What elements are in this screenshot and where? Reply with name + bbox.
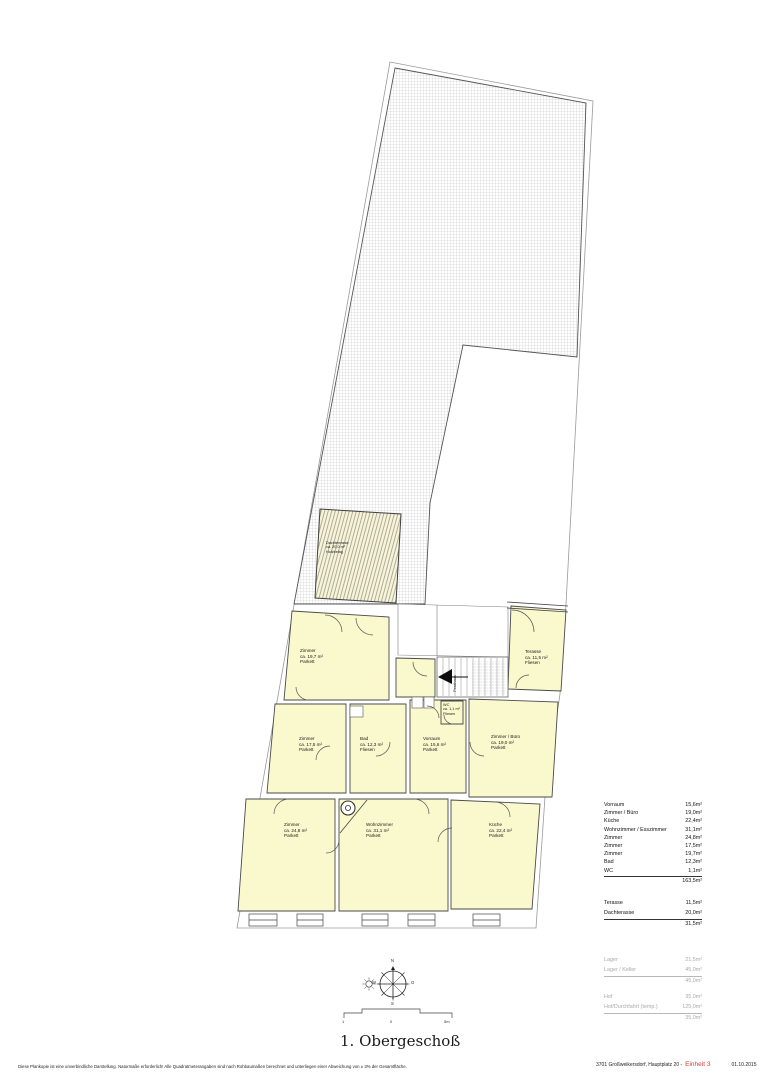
table-total-row: 163,5m² [604,876,702,886]
address-text: 3701 Großweikersdorf, Hauptplatz 20 - [596,1062,682,1068]
compass-north-label: N [391,958,394,963]
compass-rose-icon [363,966,410,1001]
table-row: Hof/Durchfahrt (temp.)125,0m² [604,1004,702,1014]
table-total-row: 45,0m² [604,976,702,988]
table-row: Bad12,3m² [604,859,702,867]
stair-direction-label: Penthaus [452,675,457,692]
table-row: Lager / Keller45,0m² [604,967,702,977]
footer-address-line: 3701 Großweikersdorf, Hauptplatz 20 - Ei… [596,1061,756,1068]
room-label-vorraum: Vorraum ca. 15,6 m² Parkett [423,736,446,753]
staircase [437,657,508,697]
table-total-row: 31,5m² [604,919,702,931]
area-table-courtyard: Hof35,0m² Hof/Durchfahrt (temp.)125,0m² … [604,994,702,1025]
scale-bar [344,1009,452,1018]
corridor-area [396,658,435,697]
scale-label-right: 5m [444,1019,450,1024]
compass-south-label: S [391,1001,394,1006]
room-label-wc: WC ca. 1,1 m² Fliesen [443,703,460,716]
disclaimer-text: Diese Plankopie ist eine unverbindliche … [18,1064,463,1069]
floorplan-page: Zimmer ca. 19,7 m² Parkett Terasse ca. 1… [0,0,763,1080]
room-kueche-area [451,800,540,909]
table-row: Zimmer / Büro19,0m² [604,810,702,818]
room-label-dachterrasse: Dachterrasse ca. 20,0 m² Holzbelag [326,541,349,554]
unit-badge: Einheit 3 [685,1061,710,1068]
table-row: Dachterasse20,0m² [604,910,702,920]
scale-label-mid: 0 [390,1019,392,1024]
page-title: 1. Obergeschoß [340,1032,460,1050]
plan-date: 01.10.2015 [731,1062,756,1068]
room-label-bad: Bad ca. 12,3 m² Fliesen [360,736,383,753]
room-label-zimmer-175: Zimmer ca. 17,5 m² Parkett [299,736,322,753]
table-row: Terasse11,5m² [604,900,702,910]
table-row: Lager21,5m² [604,957,702,967]
compass-east-label: O [411,980,414,985]
room-label-zimmer-248: Zimmer ca. 24,8 m² Parkett [284,822,307,839]
stairwell-void [398,604,508,657]
room-label-terasse: Terasse ca. 11,5 m² Fliesen [525,649,548,666]
scale-label-left: 1 [342,1019,344,1024]
room-label-zimmer-buero: Zimmer / Büro ca. 19,0 m² Parkett [491,734,520,751]
table-row: Zimmer24,8m² [604,835,702,843]
facade-windows [249,914,500,926]
room-zimmer-248-area [238,799,335,911]
table-row: Hof35,0m² [604,994,702,1004]
room-label-wohnzimmer: Wohnzimmer ca. 31,1 m² Parkett [366,822,393,839]
room-label-kueche: Küche ca. 22,4 m² Parkett [489,822,512,839]
table-row: Wohnzimmer / Esszimmer31,1m² [604,827,702,835]
table-row: Vorraum15,6m² [604,802,702,810]
area-table-storage: Lager21,5m² Lager / Keller45,0m² 45,0m² [604,957,702,988]
area-table-terraces: Terasse11,5m² Dachterasse20,0m² 31,5m² [604,900,702,931]
table-row: Zimmer17,5m² [604,843,702,851]
room-wohnzimmer-area [339,799,448,911]
table-row: Küche22,4m² [604,818,702,826]
dachterrasse-area [315,509,401,603]
room-label-zimmer-197: Zimmer ca. 19,7 m² Parkett [300,648,323,665]
compass-west-label: W [372,980,376,985]
table-row: Zimmer19,7m² [604,851,702,859]
table-total-row: 35,0m² [604,1013,702,1025]
area-table-apartment: Vorraum15,6m² Zimmer / Büro19,0m² Küche2… [604,802,702,886]
table-row: WC1,1m² [604,868,702,876]
